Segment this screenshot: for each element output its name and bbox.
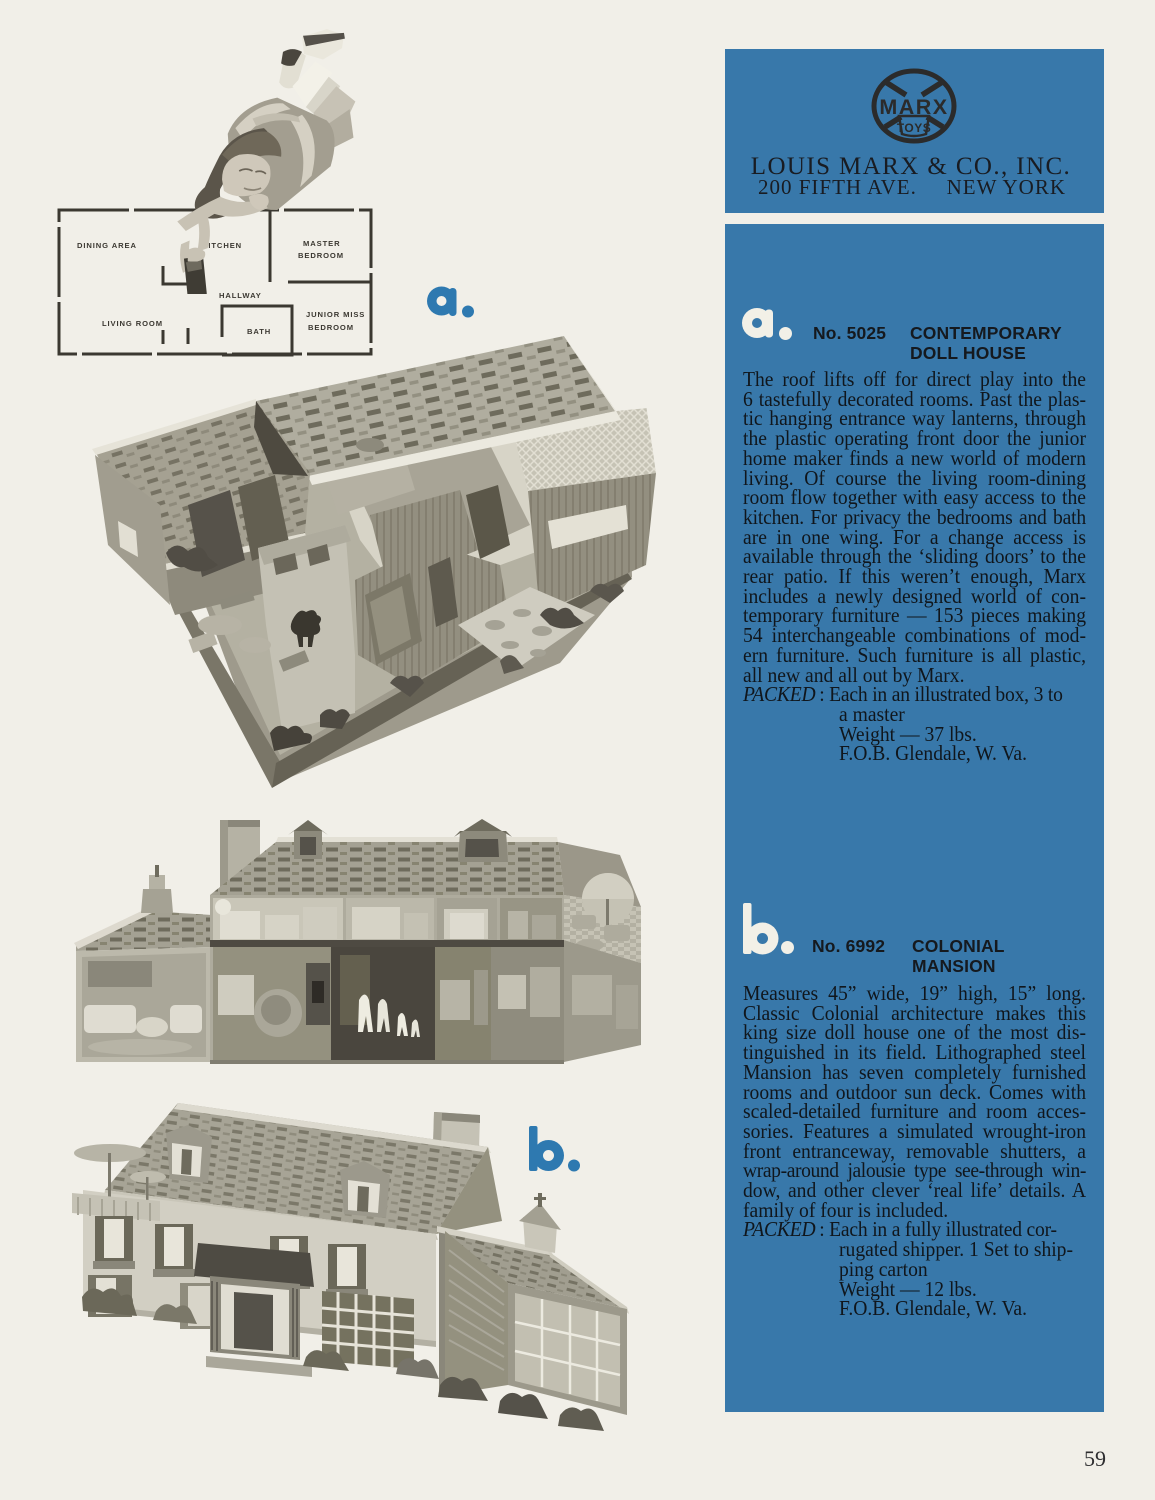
svg-text:JUNIOR MISS: JUNIOR MISS (306, 310, 365, 319)
svg-text:TOYS: TOYS (897, 121, 931, 135)
svg-text:DINING AREA: DINING AREA (77, 241, 137, 250)
